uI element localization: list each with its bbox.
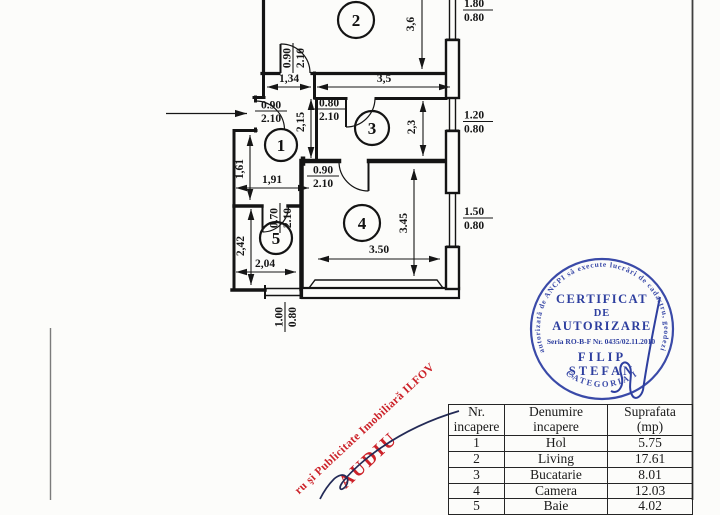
room4-bottom-wall	[302, 280, 459, 298]
table-header-row: Nr. incapere Denumire incapere Suprafata…	[449, 405, 693, 436]
header-nr-line1: Nr.	[468, 404, 485, 419]
room1-badge: 1	[265, 129, 297, 161]
row3-area: 8.01	[608, 467, 693, 483]
window4-width: 1.00	[274, 307, 286, 327]
dim-23: 2,3	[406, 120, 418, 135]
dim-35: 3,5	[377, 73, 392, 85]
stamp-line1: CERTIFICAT	[556, 292, 648, 306]
window3-height: 0.80	[464, 220, 484, 232]
row1-nr: 1	[449, 436, 505, 452]
room4-number: 4	[358, 214, 367, 233]
window1-width: 1.80	[464, 0, 484, 10]
camera-door	[339, 161, 369, 191]
stamp-name-first: FILIP	[578, 350, 626, 364]
window4-height: 0.80	[287, 307, 299, 327]
room2-badge: 2	[338, 2, 374, 38]
header-suprafata: Suprafata (mp)	[608, 405, 693, 436]
window2-width: 1.20	[464, 110, 484, 122]
room-area-table: Nr. incapere Denumire incapere Suprafata…	[448, 404, 693, 515]
camera-door-height: 2.10	[313, 178, 333, 190]
room4-badge: 4	[344, 205, 380, 241]
table-row: 3 Bucatarie 8.01	[449, 467, 693, 483]
right-wall-windows	[446, 0, 459, 289]
row2-nr: 2	[449, 451, 505, 467]
room1-number: 1	[277, 136, 286, 155]
row5-area: 4.02	[608, 499, 693, 515]
header-nr: Nr. incapere	[449, 405, 505, 436]
table-row: 1 Hol 5.75	[449, 436, 693, 452]
entry-door-width: 0.90	[261, 100, 281, 112]
dim-242: 2,42	[235, 236, 247, 256]
window1-height: 0.80	[464, 12, 484, 24]
dim-350: 3.50	[369, 244, 389, 256]
dimension-lines	[236, 0, 450, 285]
dim-191: 1,91	[262, 174, 282, 186]
red-stamp-line2: AUDIU	[335, 428, 402, 493]
row5-nr: 5	[449, 499, 505, 515]
window2-label: 1.20 0.80	[463, 110, 493, 136]
kitchen-door-height: 2.10	[319, 111, 339, 123]
window-3	[446, 194, 459, 247]
header-denumire-line1: Denumire	[529, 404, 583, 419]
row4-area: 12.03	[608, 483, 693, 499]
stamp-line3: AUTORIZARE	[552, 319, 652, 333]
header-denumire-line2: incapere	[533, 419, 579, 434]
kitchen-door-width: 0.80	[319, 98, 339, 110]
room3-number: 3	[368, 119, 377, 138]
room4-top-wall	[303, 159, 446, 164]
row2-name: Living	[505, 451, 608, 467]
window-1	[446, 0, 459, 40]
row1-name: Hol	[505, 436, 608, 452]
table-row: 2 Living 17.61	[449, 451, 693, 467]
living-door-height: 2.10	[295, 48, 307, 68]
window4-label: 1.00 0.80	[274, 302, 300, 332]
camera-door-width: 0.90	[313, 165, 333, 177]
room5-number: 5	[272, 229, 281, 248]
scanned-floor-plan-page: { "colors": { "ink": "#161616", "stamp_b…	[0, 0, 720, 500]
dim-161: 1,61	[234, 159, 246, 179]
room2-number: 2	[352, 11, 361, 30]
window2-height: 0.80	[464, 124, 484, 136]
dim-36: 3,6	[405, 17, 417, 32]
dim-345: 3.45	[398, 213, 410, 233]
row1-area: 5.75	[608, 436, 693, 452]
living-door-width: 0.90	[282, 48, 294, 68]
stamp-line2: DE	[594, 308, 611, 319]
header-denumire: Denumire incapere	[505, 405, 608, 436]
room5-bottom-window	[265, 285, 301, 299]
window3-width: 1.50	[464, 206, 484, 218]
row5-name: Baie	[505, 499, 608, 515]
row4-name: Camera	[505, 483, 608, 499]
table-row: 4 Camera 12.03	[449, 483, 693, 499]
header-nr-line2: incapere	[454, 419, 500, 434]
wall-pier-3	[446, 247, 459, 289]
certification-stamp: autorizată de ANCPI să execute lucrări d…	[0, 0, 673, 399]
entry-door-label: 0.90 2.10	[255, 100, 287, 126]
room5-door-width: 0.70	[269, 208, 281, 228]
row3-name: Bucatarie	[505, 467, 608, 483]
red-registry-stamp: ru şi Publicitate Imobiliară ILFOV AUDIU	[293, 361, 458, 500]
entry-door-height: 2.10	[261, 113, 281, 125]
row3-nr: 3	[449, 467, 505, 483]
header-suprafata-line2: (mp)	[637, 419, 663, 434]
dim-134: 1,34	[279, 73, 299, 85]
window3-label: 1.50 0.80	[463, 206, 493, 232]
wall-pier-1	[446, 40, 459, 98]
wall-pier-2	[446, 131, 459, 193]
stamp-serial: Seria RO-B-F Nr. 0435/02.11.2010	[547, 337, 655, 346]
row2-area: 17.61	[608, 451, 693, 467]
window-2	[446, 99, 459, 131]
dim-215: 2,15	[295, 112, 307, 132]
header-suprafata-line1: Suprafata	[624, 404, 676, 419]
room3-badge: 3	[355, 111, 389, 145]
row4-nr: 4	[449, 483, 505, 499]
stamp-name-last: ŞTEFAN	[569, 364, 635, 378]
table-row: 5 Baie 4.02	[449, 499, 693, 515]
camera-door-label: 0.90 2.10	[307, 165, 339, 191]
dim-204: 2,04	[255, 258, 275, 270]
window1-label: 1.80 0.80	[463, 0, 493, 24]
